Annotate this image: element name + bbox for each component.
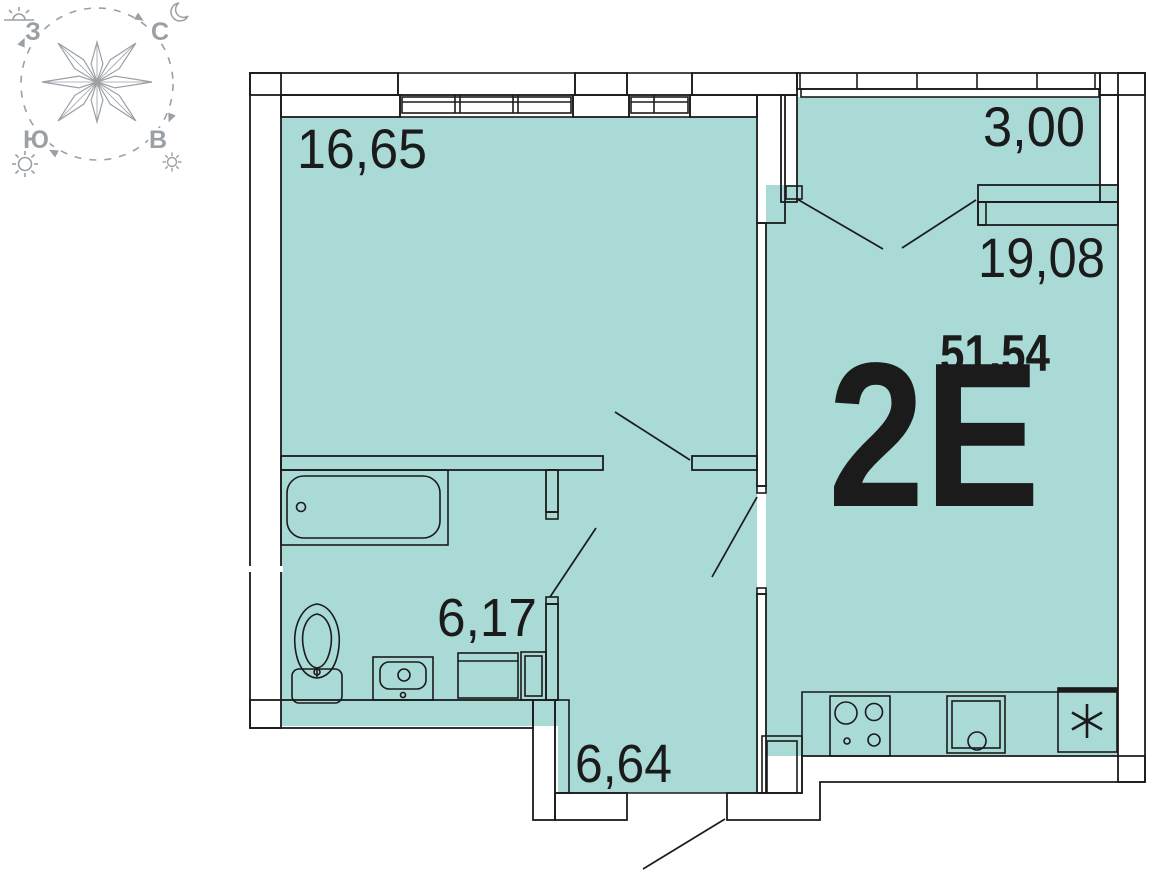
- balcony-glazing-ticks: [800, 73, 1095, 89]
- area-label-room: 16,65: [297, 117, 427, 180]
- wall-segment: [690, 95, 757, 117]
- wall-segment: [692, 73, 797, 95]
- apartment-type-label: 51,54 2Е: [828, 320, 1050, 550]
- compass-rose: З С Ю В: [4, 3, 188, 177]
- wall-segment: [250, 73, 398, 95]
- floor-plan-page: 16,65 3,00 19,08 6,17 6,64 51,54 2Е: [0, 0, 1150, 871]
- wall-segment: [575, 73, 627, 95]
- compass-west-label: З: [25, 18, 41, 46]
- balcony-parapet: [797, 73, 1100, 89]
- window-frame: [631, 97, 688, 113]
- wall-segment: [757, 223, 766, 486]
- wall-segment: [1100, 73, 1145, 95]
- area-label-balcony: 3,00: [983, 95, 1085, 158]
- wall-segment: [281, 95, 400, 117]
- wall-segment: [727, 756, 1145, 820]
- wall-panel-joint: [248, 566, 283, 572]
- window-frame: [402, 97, 571, 113]
- area-label-bathroom: 6,17: [437, 588, 537, 648]
- window-opening: [627, 73, 692, 95]
- wall-segment: [250, 73, 281, 728]
- compass-south-label: Ю: [23, 126, 49, 154]
- compass-east-label: В: [149, 126, 167, 154]
- compass-north-label: С: [151, 18, 169, 46]
- window-opening: [398, 73, 575, 95]
- compass-arrow-icon: [134, 13, 146, 25]
- wall-end-cap: [757, 486, 766, 493]
- floor-plan-svg: 16,65 3,00 19,08 6,17 6,64 51,54 2Е: [0, 0, 1150, 871]
- wall-segment: [555, 793, 627, 820]
- entry-door-leaf: [643, 819, 725, 869]
- wall-end-cap: [757, 588, 766, 594]
- area-label-hallway: 6,64: [575, 734, 672, 794]
- area-label-living: 19,08: [978, 226, 1105, 289]
- wall-segment: [1118, 73, 1145, 782]
- moon-icon: [171, 3, 188, 21]
- wall-segment: [573, 95, 629, 117]
- apartment-type-text: 2Е: [828, 320, 1040, 550]
- compass-arrow-icon: [47, 146, 59, 157]
- sun-icon: [12, 151, 38, 177]
- compass-star-icon: [42, 42, 152, 122]
- sun-small-icon: [163, 153, 182, 172]
